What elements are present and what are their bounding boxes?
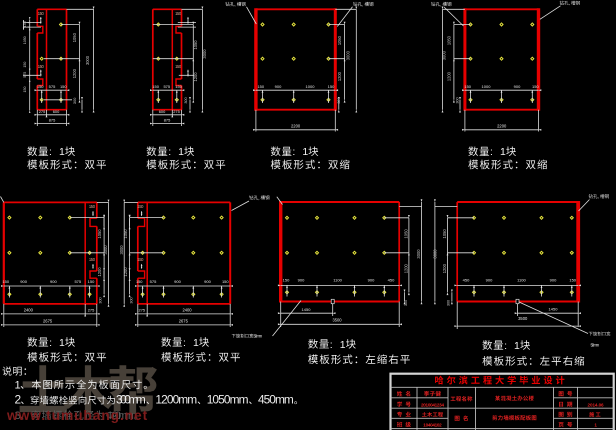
svg-text:1050: 1050 — [446, 35, 451, 45]
svg-text:,: , — [234, 2, 235, 7]
svg-text:150: 150 — [89, 204, 96, 209]
svg-text:150: 150 — [23, 87, 27, 93]
svg-text:2200: 2200 — [291, 123, 301, 128]
svg-text:900: 900 — [550, 277, 557, 282]
svg-text:150: 150 — [137, 204, 144, 209]
svg-text:1050: 1050 — [442, 229, 447, 239]
svg-text:450: 450 — [388, 277, 395, 282]
svg-text:1200: 1200 — [193, 72, 198, 82]
svg-text:900: 900 — [50, 279, 57, 284]
svg-text:1200: 1200 — [446, 71, 451, 81]
svg-text:3500: 3500 — [518, 316, 528, 321]
svg-text:275: 275 — [139, 307, 146, 312]
svg-text:575: 575 — [150, 279, 157, 284]
svg-text:300mm: 300mm — [116, 393, 146, 407]
svg-text:150: 150 — [257, 84, 264, 89]
svg-text:275: 275 — [88, 307, 95, 312]
svg-text:150: 150 — [532, 84, 539, 89]
svg-text:3000: 3000 — [442, 50, 447, 60]
svg-text:3000: 3000 — [202, 49, 207, 59]
svg-text:150: 150 — [37, 84, 44, 89]
svg-text:3000: 3000 — [103, 245, 108, 255]
svg-text:2675: 2675 — [179, 318, 189, 323]
svg-text:1050: 1050 — [123, 229, 128, 239]
svg-text:2010041234: 2010041234 — [421, 402, 444, 407]
svg-text:2200: 2200 — [497, 123, 507, 128]
svg-text:1050: 1050 — [337, 35, 342, 45]
svg-text:875: 875 — [164, 117, 171, 122]
svg-text:,: , — [440, 2, 441, 7]
svg-text:150: 150 — [38, 64, 45, 69]
svg-text:2400: 2400 — [24, 307, 34, 312]
svg-text:300: 300 — [72, 97, 77, 104]
svg-text:2014.06: 2014.06 — [588, 402, 605, 407]
svg-text:1000: 1000 — [482, 84, 492, 89]
svg-text:1450: 1450 — [549, 307, 559, 312]
svg-text:575: 575 — [23, 72, 27, 78]
svg-text:300: 300 — [184, 97, 188, 103]
svg-text:2675: 2675 — [43, 318, 53, 323]
svg-text:450mm: 450mm — [258, 393, 294, 407]
svg-text:150: 150 — [152, 84, 159, 89]
svg-text:150: 150 — [328, 84, 335, 89]
svg-text:150: 150 — [2, 279, 9, 284]
svg-text:1: 1 — [15, 379, 21, 391]
svg-text:1200: 1200 — [337, 71, 342, 81]
svg-text:150: 150 — [464, 84, 471, 89]
svg-text:575: 575 — [74, 279, 81, 284]
svg-text:1050: 1050 — [404, 229, 409, 239]
svg-text:300: 300 — [456, 97, 460, 103]
svg-text:50mm: 50mm — [254, 333, 263, 338]
svg-text:2400: 2400 — [182, 307, 192, 312]
svg-text:1050: 1050 — [97, 229, 102, 239]
svg-text:,: , — [362, 2, 363, 7]
svg-text:150: 150 — [23, 62, 27, 68]
svg-text:150: 150 — [175, 64, 182, 69]
svg-text:3000: 3000 — [345, 50, 350, 60]
svg-text:3500: 3500 — [332, 318, 342, 323]
svg-text:900: 900 — [275, 84, 282, 89]
svg-text:150: 150 — [175, 84, 182, 89]
svg-text:150: 150 — [175, 11, 182, 16]
svg-text:150: 150 — [137, 257, 144, 262]
svg-text:150: 150 — [88, 279, 95, 284]
svg-text:1450: 1450 — [302, 307, 312, 312]
svg-text:1200: 1200 — [97, 267, 102, 277]
svg-text:,: , — [569, 1, 570, 6]
svg-text:1: 1 — [594, 423, 597, 428]
svg-text:900: 900 — [368, 277, 375, 282]
svg-text:300: 300 — [130, 297, 134, 303]
svg-text:150: 150 — [89, 257, 96, 262]
svg-text:3000: 3000 — [85, 55, 90, 65]
svg-text:900: 900 — [20, 279, 27, 284]
svg-text:300: 300 — [99, 297, 103, 303]
svg-text:1050: 1050 — [72, 32, 77, 42]
svg-text:150: 150 — [569, 277, 576, 282]
svg-text:300: 300 — [337, 97, 341, 103]
svg-text:600: 600 — [53, 109, 60, 114]
svg-text:1200: 1200 — [72, 68, 77, 78]
svg-text:50mm: 50mm — [591, 343, 600, 348]
svg-text:150: 150 — [23, 21, 27, 27]
svg-text:10404102: 10404102 — [423, 423, 442, 428]
svg-text:900: 900 — [174, 279, 181, 284]
svg-text:300: 300 — [447, 300, 451, 306]
svg-text:150: 150 — [38, 11, 45, 16]
svg-text:www.tumubang.net: www.tumubang.net — [6, 408, 148, 423]
svg-text:150: 150 — [283, 277, 290, 282]
svg-text:150: 150 — [222, 279, 229, 284]
svg-text:150: 150 — [60, 84, 67, 89]
svg-text:1050: 1050 — [193, 40, 198, 50]
svg-text:275: 275 — [173, 109, 180, 114]
svg-text:600: 600 — [159, 109, 166, 114]
svg-text:2: 2 — [15, 393, 22, 407]
svg-text:575: 575 — [163, 84, 170, 89]
svg-text:1200mm: 1200mm — [155, 393, 197, 407]
svg-text:900: 900 — [298, 277, 305, 282]
svg-text:575: 575 — [49, 84, 56, 89]
svg-text:,: , — [598, 194, 599, 199]
svg-text:300: 300 — [404, 300, 408, 306]
svg-text:3000: 3000 — [432, 249, 437, 259]
svg-text:1100: 1100 — [517, 277, 526, 282]
svg-text:275: 275 — [39, 109, 46, 114]
svg-text:1200: 1200 — [123, 267, 128, 277]
svg-text:1200: 1200 — [442, 263, 447, 273]
svg-text:900: 900 — [514, 84, 521, 89]
svg-text:875: 875 — [49, 117, 56, 122]
svg-text:1050mm: 1050mm — [207, 393, 249, 407]
svg-text:,: , — [258, 195, 259, 200]
svg-text:3000: 3000 — [119, 245, 124, 255]
svg-text:1000: 1000 — [306, 84, 316, 89]
svg-text:900: 900 — [486, 277, 493, 282]
svg-text:1200: 1200 — [404, 263, 409, 273]
svg-text:900: 900 — [204, 279, 211, 284]
svg-text:450: 450 — [463, 277, 470, 282]
svg-text:150: 150 — [136, 279, 143, 284]
svg-text:1100: 1100 — [333, 277, 342, 282]
svg-text:1050: 1050 — [23, 36, 27, 44]
svg-text:3000: 3000 — [416, 249, 421, 259]
